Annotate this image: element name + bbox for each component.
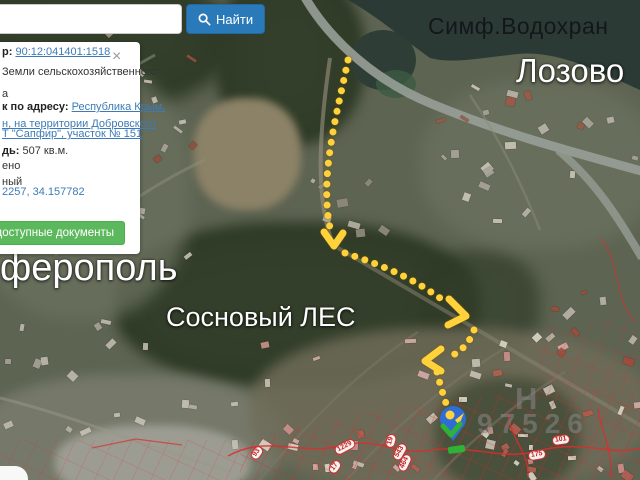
house-roof — [348, 220, 361, 229]
house-roof — [189, 405, 198, 410]
house-roof — [352, 462, 359, 470]
house-roof — [40, 357, 48, 366]
watermark-number: 97526 — [477, 408, 590, 440]
house-roof — [632, 155, 639, 161]
house-roof — [310, 179, 316, 184]
cadastral-number-link[interactable]: 90:12:041401:1518 — [15, 46, 110, 58]
map-control-corner[interactable] — [0, 466, 28, 480]
house-roof — [523, 90, 531, 100]
house-roof — [527, 466, 537, 473]
house-roof — [450, 150, 458, 159]
house-roof — [417, 370, 430, 380]
house-roof — [173, 125, 183, 133]
house-roof — [186, 54, 197, 63]
house-roof — [582, 410, 593, 418]
house-roof — [356, 429, 365, 438]
house-roof — [460, 115, 469, 122]
house-roof — [545, 333, 555, 343]
address-label: к по адресу: — [2, 101, 69, 113]
house-roof — [313, 464, 318, 470]
house-roof — [411, 464, 420, 473]
house-roof — [313, 356, 320, 361]
house-roof — [182, 399, 189, 408]
house-roof — [265, 378, 270, 386]
house-roof — [543, 384, 556, 395]
house-roof — [470, 371, 483, 380]
land-category-text: Земли сельскохозяйственного — [2, 66, 157, 78]
house-roof — [521, 207, 531, 217]
house-roof — [528, 458, 534, 464]
address-link-plot[interactable]: Т "Сапфир", участок № 151 — [2, 128, 142, 140]
house-roof — [505, 96, 515, 106]
house-roof — [134, 416, 146, 426]
house-roof — [504, 352, 510, 361]
quarry — [55, 425, 250, 480]
house-roof — [231, 401, 239, 406]
house-roof — [287, 443, 298, 451]
route-arrow-left — [425, 349, 441, 371]
house-roof — [3, 420, 13, 429]
house-roof — [529, 445, 533, 450]
cadastral-grid-right — [535, 317, 640, 399]
house-roof — [620, 470, 633, 480]
search-icon — [198, 13, 211, 26]
parcel-number-chip: 543 — [391, 442, 409, 462]
house-roof — [65, 425, 73, 433]
bare-field — [193, 98, 301, 210]
house-roof — [336, 198, 348, 208]
house-roof — [527, 471, 537, 480]
house-roof — [5, 359, 11, 365]
house-roof — [628, 335, 637, 345]
parcel-number-chip: 17 — [327, 458, 343, 475]
house-roof — [160, 143, 168, 153]
area-value: 507 кв.м. — [22, 145, 68, 157]
house-roof — [325, 463, 331, 472]
house-roof — [358, 430, 365, 437]
house-roof — [493, 219, 502, 223]
label-pine-forest: Сосновый ЛЕС — [166, 302, 356, 333]
house-roof — [568, 455, 577, 460]
house-roof — [483, 167, 495, 178]
open-land-bottomleft — [0, 375, 285, 480]
house-roof — [283, 424, 294, 435]
forest-area-main — [115, 222, 480, 387]
coordinates-value: 2257, 34.157782 — [2, 186, 85, 198]
house-roof — [352, 460, 364, 468]
house-roof — [32, 358, 41, 369]
house-roof — [461, 192, 470, 202]
house-roof — [518, 434, 528, 438]
house-roof — [364, 178, 373, 187]
house-roof — [499, 340, 507, 348]
area-label: дь: — [2, 145, 19, 157]
house-roof — [509, 423, 522, 436]
parcel-number-chip: 175 — [527, 449, 546, 462]
panel-text-fragment: а — [2, 88, 8, 100]
house-roof — [445, 424, 455, 431]
village-ground-bottom — [250, 328, 640, 480]
cadastral-grid-bottom — [240, 390, 640, 480]
house-roof — [232, 440, 239, 449]
house-roof — [188, 141, 197, 150]
house-roof — [355, 228, 365, 237]
house-roof — [405, 339, 416, 344]
parcel-number-chip: 19 — [384, 433, 397, 449]
house-roof — [114, 413, 121, 418]
house-roof — [600, 296, 607, 304]
watermark-letter: Н — [515, 381, 537, 417]
house-roof — [633, 401, 640, 408]
house-roof — [492, 369, 502, 377]
parcel-number-chip: 1229 — [333, 438, 357, 457]
status-text-fragment: ено — [2, 160, 20, 172]
route-arrow-right — [448, 299, 466, 325]
house-roof — [392, 464, 400, 472]
house-roof — [532, 332, 543, 343]
route-arrow-down — [324, 232, 343, 246]
parcel-number-chip: 93 — [249, 444, 265, 461]
house-roof — [471, 359, 479, 367]
house-roof — [471, 84, 480, 91]
search-input[interactable] — [0, 4, 182, 34]
house-roof — [551, 307, 560, 312]
house-roof — [537, 124, 549, 135]
house-roof — [143, 342, 148, 349]
house-roof — [597, 465, 604, 472]
house-roof — [94, 321, 103, 330]
forest-area-east — [420, 250, 540, 360]
house-roof — [184, 252, 192, 260]
house-roof — [501, 448, 508, 457]
house-roof — [505, 383, 513, 388]
address-link-region[interactable]: Республика Крым, — [72, 101, 166, 113]
house-roof — [557, 348, 567, 358]
house-roof — [505, 141, 517, 149]
house-roof — [506, 90, 518, 98]
search-button-label: Найти — [216, 12, 253, 27]
house-roof — [557, 342, 569, 352]
house-roof — [622, 356, 635, 366]
parcel-number-chip: 101 — [551, 434, 570, 446]
house-roof — [478, 181, 490, 190]
house-roof — [606, 117, 614, 124]
documents-button[interactable]: ль доступные документы — [0, 221, 125, 245]
house-roof — [178, 119, 186, 125]
house-roof — [105, 339, 116, 350]
house-roof — [144, 79, 152, 83]
search-button[interactable]: Найти — [186, 4, 265, 34]
house-roof — [577, 122, 585, 130]
dark-field-bottomright — [435, 378, 580, 480]
house-roof — [100, 319, 111, 325]
house-roof — [259, 438, 272, 450]
house-roof — [79, 427, 91, 436]
house-roof — [351, 441, 358, 450]
house-roof — [441, 154, 448, 160]
house-roof — [293, 438, 300, 444]
house-roof — [483, 110, 490, 117]
destination-marker — [440, 406, 466, 454]
house-roof — [569, 171, 574, 179]
house-roof — [459, 397, 467, 402]
house-roof — [581, 290, 588, 295]
cadastral-number-label: р: — [2, 46, 12, 58]
house-roof — [318, 182, 326, 190]
house-roof — [485, 440, 495, 450]
house-roof — [582, 117, 594, 129]
parcel-number-chip: 464 — [397, 453, 414, 473]
house-roof — [501, 443, 511, 452]
house-roof — [481, 430, 490, 439]
house-roof — [618, 463, 625, 472]
house-roof — [426, 413, 438, 425]
close-icon[interactable]: × — [112, 50, 121, 64]
house-roof — [513, 459, 520, 465]
label-lozovoe: Лозово — [516, 52, 624, 90]
house-roof — [488, 427, 494, 435]
house-roof — [322, 214, 332, 223]
label-reservoir: Симф.Водохран — [428, 13, 608, 40]
house-roof — [377, 225, 389, 237]
house-roof — [153, 155, 162, 164]
house-roof — [617, 406, 624, 416]
house-roof — [19, 323, 24, 331]
suburb-lozovoe — [420, 80, 640, 250]
house-roof — [562, 307, 575, 320]
house-roof — [481, 162, 494, 175]
house-roof — [571, 328, 581, 338]
house-roof — [260, 341, 269, 348]
house-roof — [548, 400, 556, 409]
cadastral-grid-bottomleft — [0, 440, 242, 480]
house-roof — [67, 370, 79, 382]
house-roof — [436, 117, 447, 123]
map-viewport[interactable]: Симф.Водохран Лозово ферополь Сосновый Л… — [0, 0, 640, 480]
